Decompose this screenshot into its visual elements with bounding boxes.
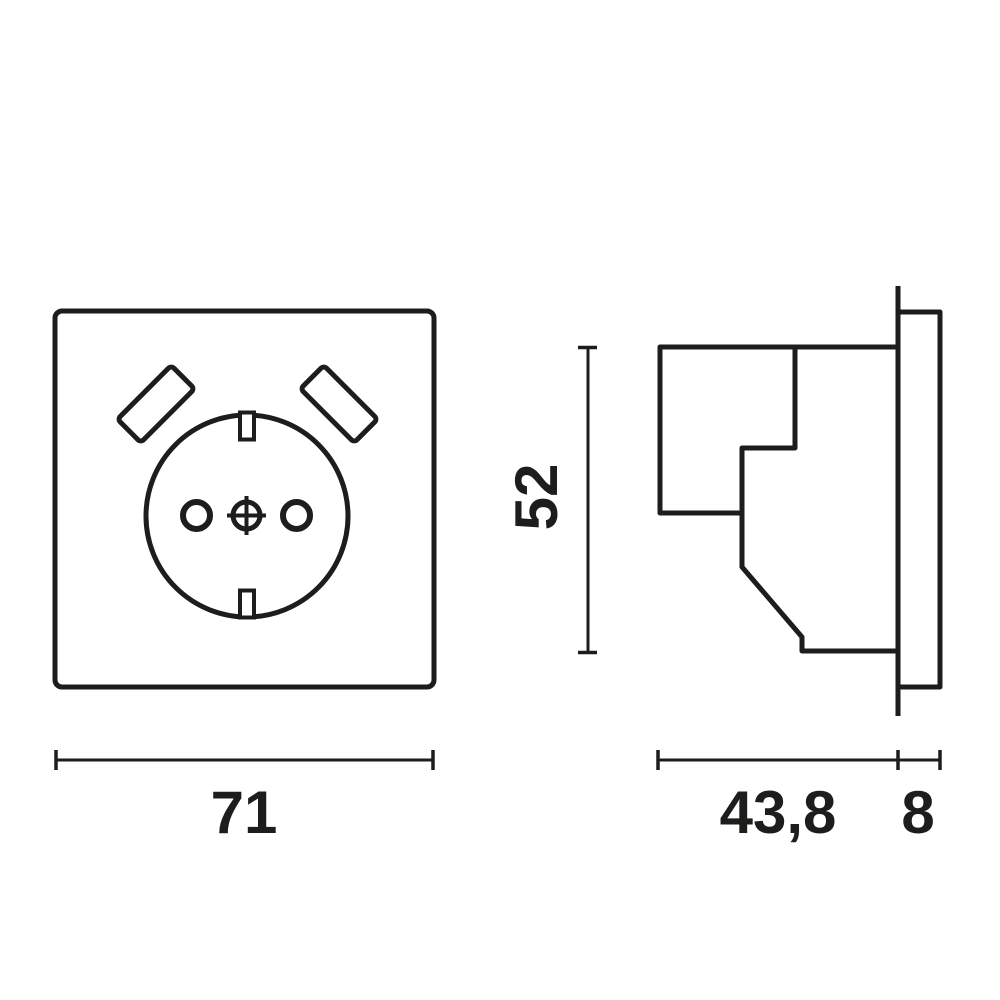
pin-hole-right — [283, 502, 310, 529]
center-screw — [227, 496, 266, 535]
height-dimension-label: 52 — [503, 464, 570, 531]
earth-clip-notch-top — [240, 413, 254, 440]
page: { "page": { "background_color": "#ffffff… — [0, 0, 1000, 1000]
drawing-canvas: 71 52 43,8 — [0, 0, 1000, 1000]
usb-slot-right — [300, 365, 377, 442]
socket-body-profile — [660, 347, 898, 651]
front-width-dimension: 71 — [56, 750, 433, 846]
cover-frame-profile — [898, 312, 940, 687]
depth-dimension-label: 43,8 — [720, 779, 837, 846]
usb-slot-left — [117, 365, 194, 442]
earth-clip-notch-bottom — [240, 591, 254, 618]
width-dimension-label: 71 — [211, 779, 278, 846]
side-height-dimension: 52 — [503, 348, 597, 653]
pin-hole-left — [183, 502, 210, 529]
front-view: 71 — [55, 311, 434, 846]
technical-drawing: 71 52 43,8 — [0, 0, 1000, 1000]
frame-thickness-dimension-label: 8 — [901, 779, 934, 846]
side-view: 52 43,8 8 — [503, 286, 940, 846]
side-depth-dimension: 43,8 8 — [658, 750, 940, 846]
